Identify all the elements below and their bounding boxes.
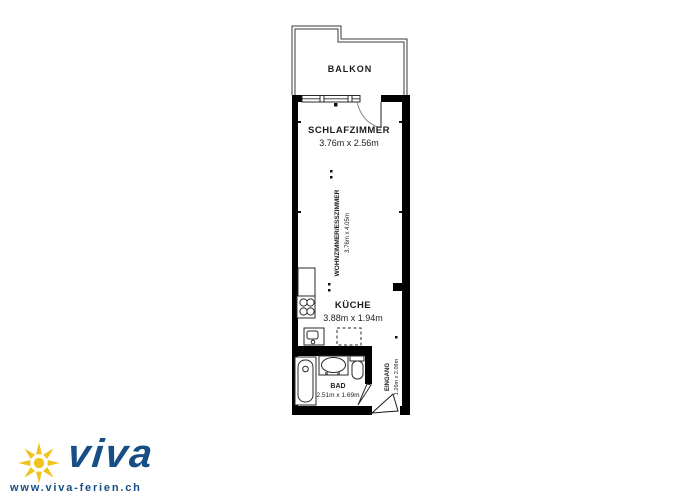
dishwasher-dashed bbox=[337, 328, 361, 345]
dims-schlafzimmer: 3.76m x 2.56m bbox=[319, 138, 379, 148]
wall-right-jut bbox=[393, 283, 402, 291]
viva-logo: viva www.viva-ferien.ch bbox=[12, 438, 232, 498]
wall-bath-entrance bbox=[365, 346, 372, 384]
window-mullion bbox=[320, 96, 324, 103]
toilet bbox=[350, 356, 364, 379]
bathroom-sink bbox=[319, 356, 348, 375]
website-url: www.viva-ferien.ch bbox=[10, 482, 142, 494]
wall-top-right-segment bbox=[381, 95, 410, 102]
label-balkon: BALKON bbox=[328, 64, 373, 74]
dims-wohnzimmer: 3.76m x 4.05m bbox=[345, 213, 351, 253]
sun-icon bbox=[16, 440, 62, 486]
bathroom-door bbox=[358, 384, 371, 405]
bedroom-window bbox=[302, 96, 360, 103]
wall-kitchen-bath bbox=[292, 346, 372, 356]
kitchen-counter bbox=[298, 268, 315, 296]
floor-plan-drawing: BALKON SCHLAFZIMMER 3.76m x 2.56m WOHNZI… bbox=[0, 0, 700, 500]
label-bad: BAD bbox=[330, 383, 345, 390]
label-schlafzimmer: SCHLAFZIMMER bbox=[308, 125, 390, 136]
dims-eingang: 1.26m x 2.09m bbox=[394, 358, 400, 395]
label-kueche: KÜCHE bbox=[335, 300, 371, 311]
dims-kueche: 3.88m x 1.94m bbox=[323, 313, 383, 323]
kitchen-sink bbox=[304, 328, 324, 345]
wall-bottom-right bbox=[400, 406, 410, 415]
entrance-door bbox=[372, 394, 398, 413]
stove bbox=[297, 296, 315, 318]
logo-wordmark: viva bbox=[66, 432, 157, 477]
bathtub bbox=[295, 357, 316, 405]
window-mullion bbox=[348, 96, 352, 103]
wall-right bbox=[402, 95, 410, 415]
label-wohnzimmer: WOHNZIMMER/ESSZIMMER bbox=[334, 189, 341, 276]
wall-bottom-left bbox=[292, 406, 372, 415]
dims-bad: 2.51m x 1.69m bbox=[317, 392, 360, 399]
floorplan-page: BALKON SCHLAFZIMMER 3.76m x 2.56m WOHNZI… bbox=[0, 0, 700, 500]
balcony-outline bbox=[292, 26, 407, 95]
label-eingang: EINGANG bbox=[385, 363, 391, 391]
